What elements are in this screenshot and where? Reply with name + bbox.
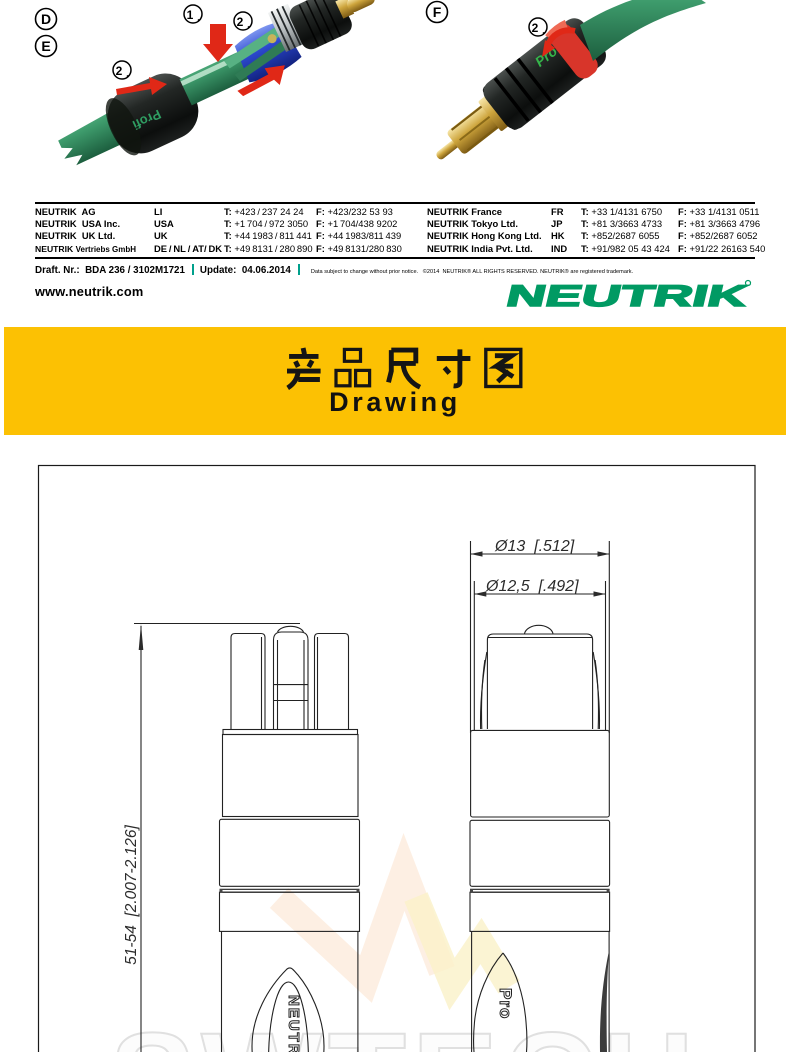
svg-text:Pro: Pro [496,988,515,1019]
svg-text:2: 2 [532,21,539,35]
svg-text:.: . [197,10,200,24]
svg-text:1: 1 [187,8,194,22]
svg-text:NEUTRIK: NEUTRIK [503,279,751,313]
svg-text:Drawing: Drawing [329,387,461,417]
svg-text:2: 2 [237,15,244,29]
svg-text:D: D [41,11,51,27]
svg-text:.: . [126,66,129,80]
svg-text:NEUTRIK: NEUTRIK [285,995,302,1052]
svg-text:2: 2 [116,64,123,78]
svg-text:Ø12,5 [.492]: Ø12,5 [.492] [485,578,579,595]
svg-text:F: F [433,4,442,20]
svg-text:SWTECH: SWTECH [110,1007,701,1052]
svg-text:.: . [247,17,250,31]
svg-text:51-54 [2.007-2.126]: 51-54 [2.007-2.126] [123,825,140,965]
svg-text:.: . [542,23,545,37]
svg-text:Ø13 [.512]: Ø13 [.512] [494,538,575,555]
svg-text:E: E [41,38,50,54]
